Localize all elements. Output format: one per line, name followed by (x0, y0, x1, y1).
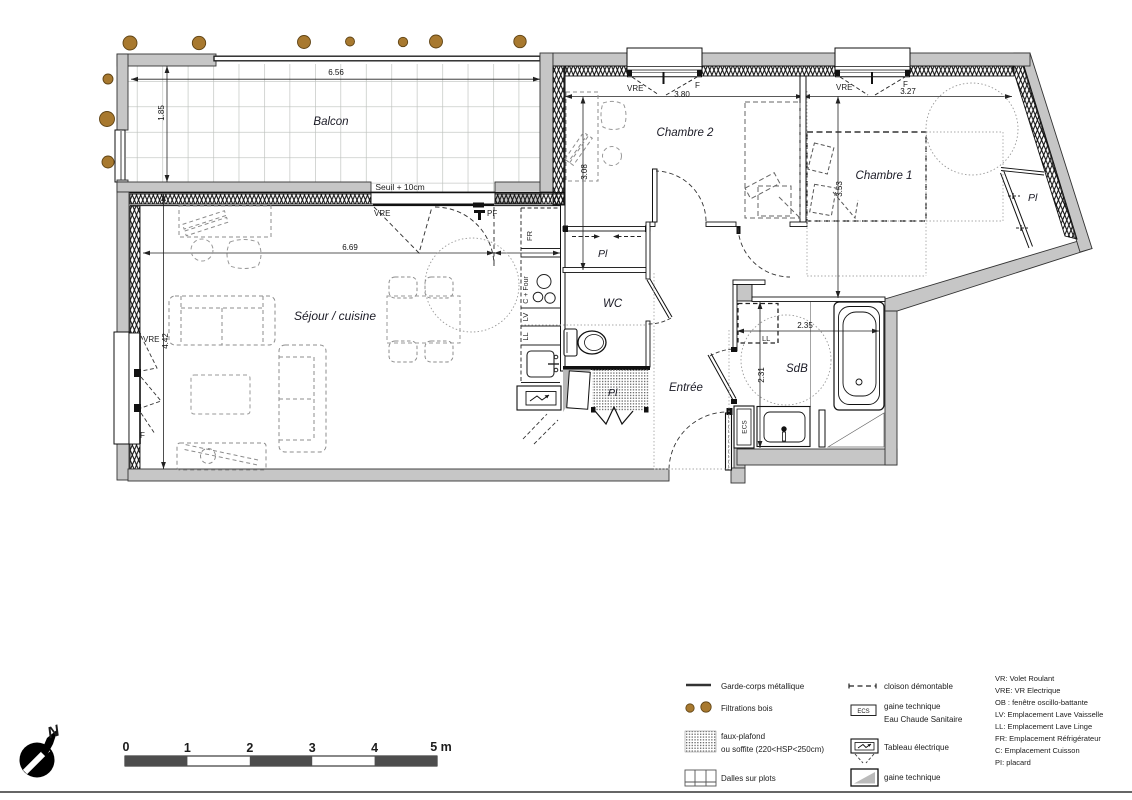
svg-text:Eau Chaude Sanitaire: Eau Chaude Sanitaire (884, 715, 963, 724)
svg-text:Dalles sur plots: Dalles sur plots (721, 774, 776, 783)
svg-text:Pl: Pl (608, 387, 618, 399)
svg-text:3.27: 3.27 (900, 87, 916, 96)
svg-text:VRE: VRE (374, 209, 390, 218)
svg-text:SdB: SdB (786, 363, 808, 375)
svg-text:6.69: 6.69 (342, 243, 358, 252)
svg-text:PI: placard: PI: placard (995, 758, 1031, 767)
svg-text:Filtrations bois: Filtrations bois (721, 704, 773, 713)
svg-text:Seuil + 10cm: Seuil + 10cm (375, 182, 424, 192)
svg-text:6.56: 6.56 (328, 68, 344, 77)
svg-text:5 m: 5 m (430, 740, 452, 754)
svg-text:2.35: 2.35 (797, 321, 813, 330)
svg-text:Garde-corps métallique: Garde-corps métallique (721, 682, 805, 691)
svg-text:3: 3 (309, 741, 316, 755)
svg-text:0: 0 (123, 740, 130, 754)
svg-text:Entrée: Entrée (669, 382, 703, 394)
svg-text:faux-plafond: faux-plafond (721, 732, 765, 741)
svg-text:FR: Emplacement Réfrigérateur: FR: Emplacement Réfrigérateur (995, 734, 1101, 743)
svg-text:FR: FR (525, 230, 534, 241)
svg-text:3.80: 3.80 (674, 90, 690, 99)
svg-text:gaine technique: gaine technique (884, 702, 941, 711)
svg-text:PF: PF (487, 209, 497, 218)
svg-text:WC: WC (603, 298, 623, 310)
svg-text:gaine technique: gaine technique (884, 773, 941, 782)
svg-text:Pl: Pl (1028, 192, 1038, 204)
svg-text:2.31: 2.31 (757, 367, 766, 383)
svg-text:LL: LL (521, 332, 530, 340)
svg-text:VRE: VRE (627, 84, 643, 93)
svg-text:4.42: 4.42 (161, 333, 170, 349)
svg-text:Tableau électrique: Tableau électrique (884, 743, 949, 752)
svg-text:Chambre 2: Chambre 2 (657, 127, 714, 139)
svg-text:OB : fenêtre oscillo-battante: OB : fenêtre oscillo-battante (995, 698, 1088, 707)
svg-text:VR: Volet Roulant: VR: Volet Roulant (995, 674, 1055, 683)
svg-text:LV: LV (521, 313, 530, 322)
svg-text:C: Emplacement Cuisson: C: Emplacement Cuisson (995, 746, 1080, 755)
svg-text:Pl: Pl (598, 248, 608, 260)
svg-text:VRE: VR Electrique: VRE: VR Electrique (995, 686, 1060, 695)
svg-text:F: F (140, 431, 145, 440)
svg-text:1.85: 1.85 (157, 105, 166, 121)
svg-text:2: 2 (246, 741, 253, 755)
svg-text:ECS: ECS (742, 420, 749, 434)
svg-text:ECS: ECS (857, 709, 869, 715)
svg-text:Balcon: Balcon (313, 116, 348, 128)
svg-text:3.08: 3.08 (580, 164, 589, 180)
svg-text:ou soffite (220<HSP<250cm): ou soffite (220<HSP<250cm) (721, 745, 824, 754)
svg-text:Séjour / cuisine: Séjour / cuisine (294, 309, 376, 323)
svg-text:Chambre 1: Chambre 1 (856, 170, 913, 182)
svg-text:C + Four: C + Four (523, 276, 530, 304)
svg-text:LL: LL (762, 334, 770, 343)
svg-text:VRE: VRE (836, 83, 852, 92)
svg-text:1: 1 (184, 741, 191, 755)
svg-text:F: F (695, 81, 700, 90)
svg-text:4: 4 (371, 741, 378, 755)
svg-text:VRE: VRE (143, 335, 159, 344)
svg-text:LV: Emplacement Lave Vaisselle: LV: Emplacement Lave Vaisselle (995, 710, 1103, 719)
svg-text:LL: Emplacement Lave Linge: LL: Emplacement Lave Linge (995, 722, 1092, 731)
svg-text:cloison démontable: cloison démontable (884, 682, 953, 691)
